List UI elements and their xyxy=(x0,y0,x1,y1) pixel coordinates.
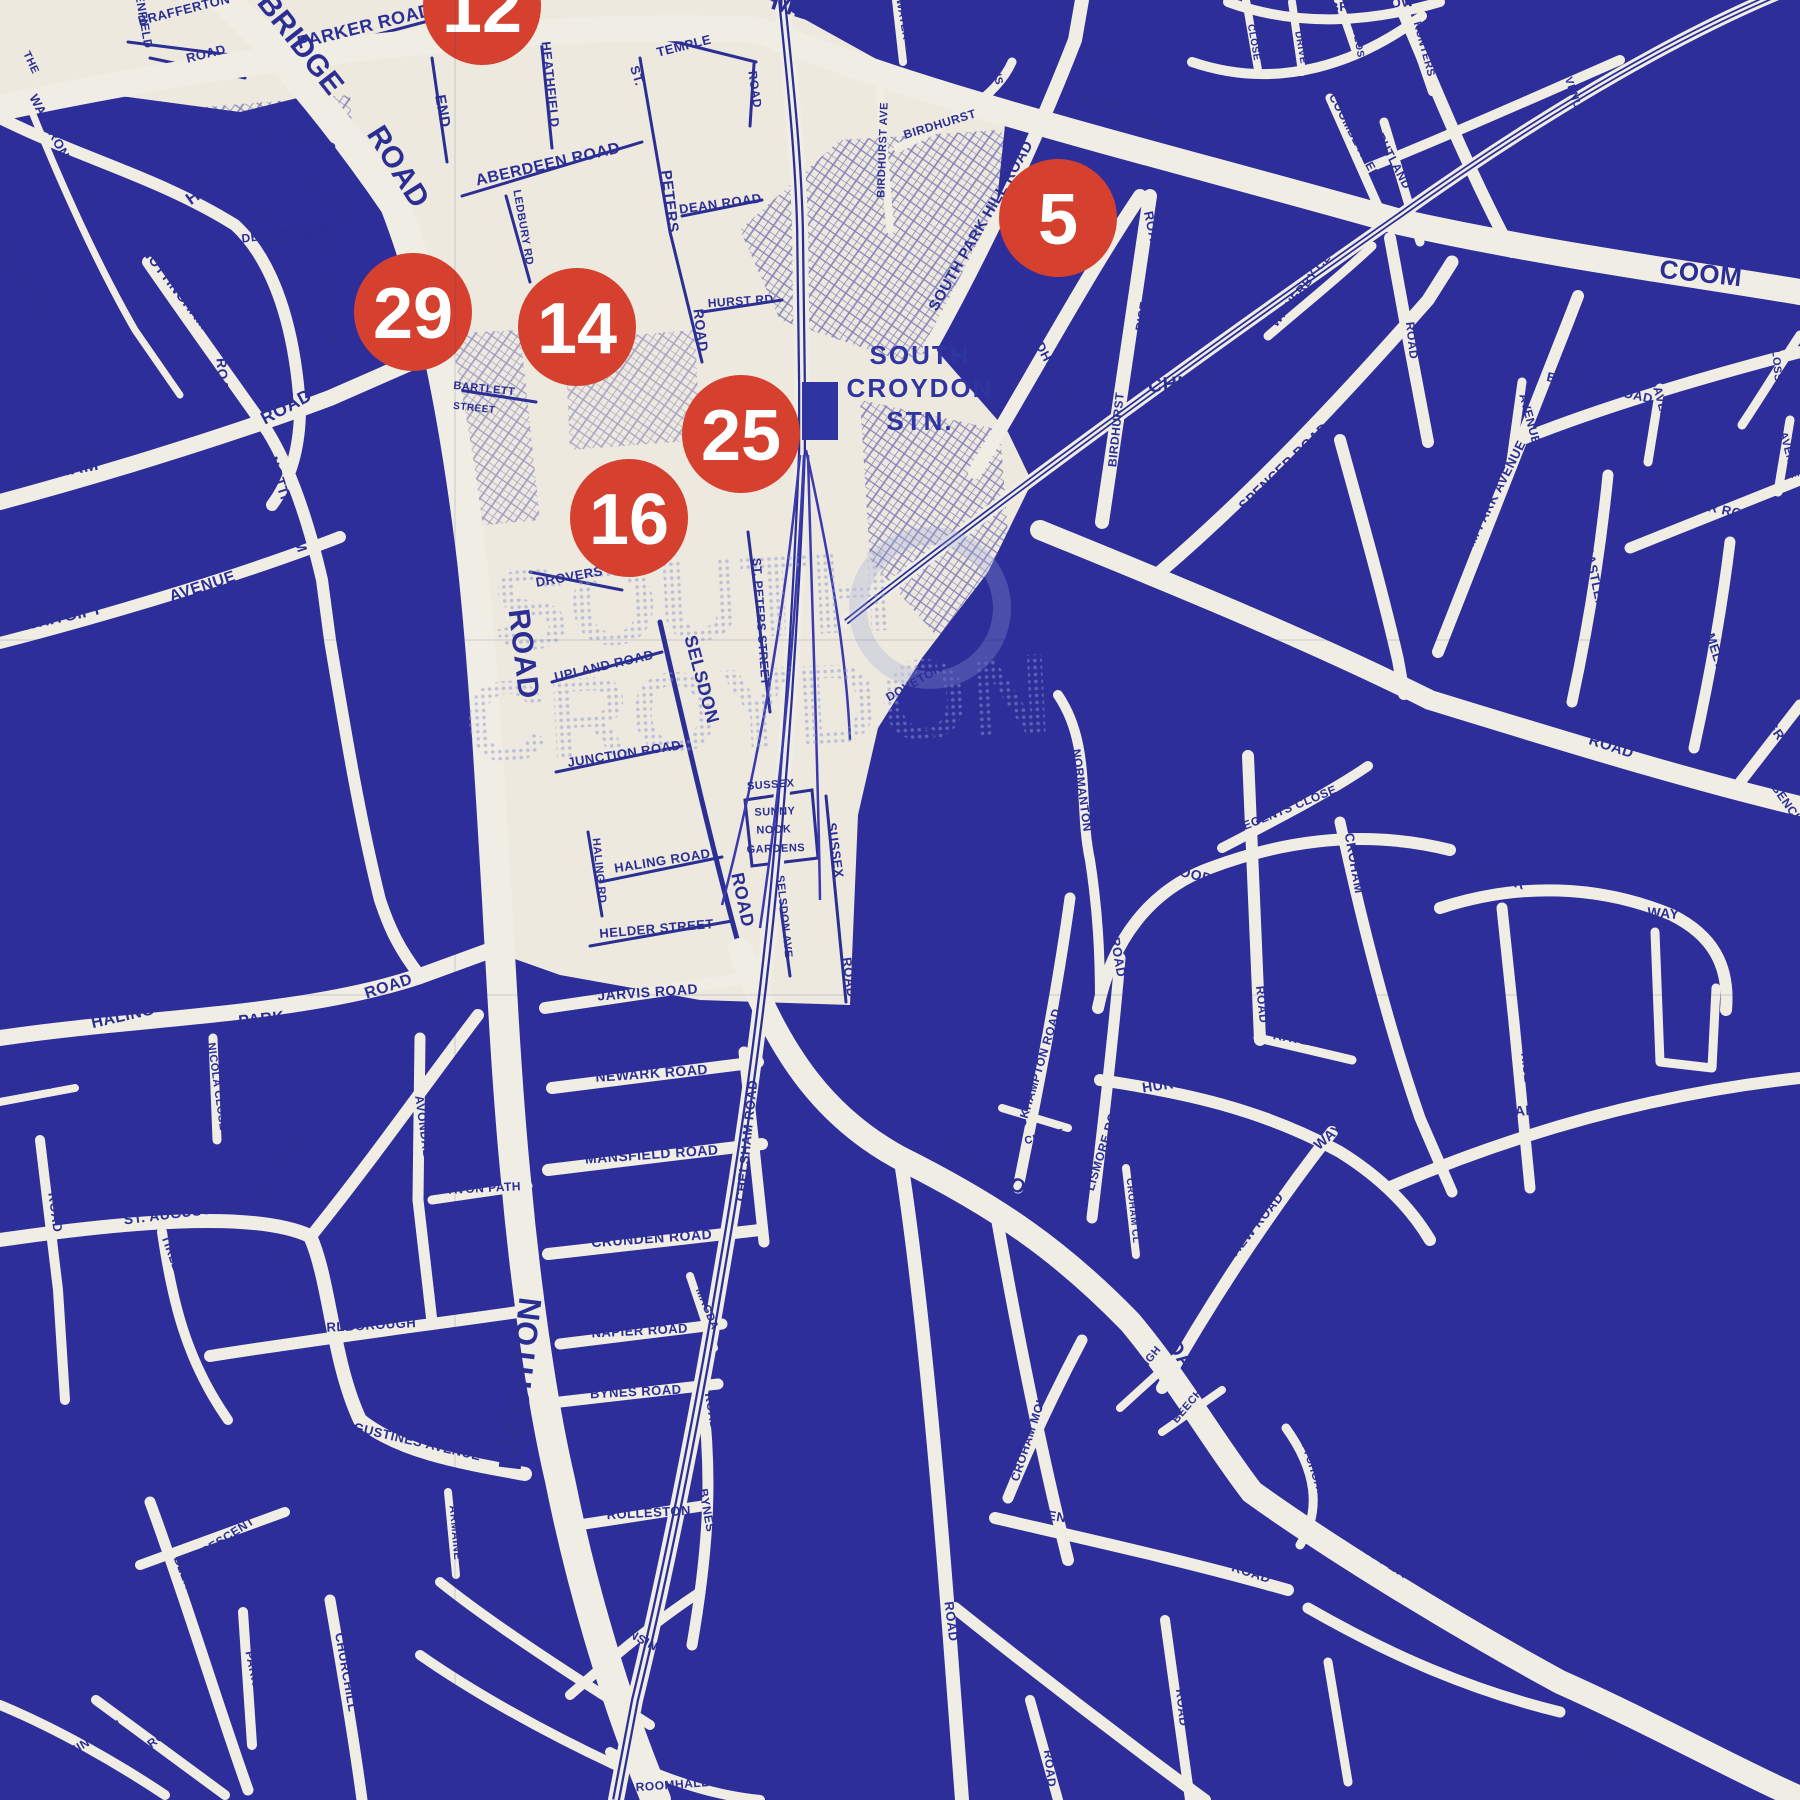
station-name-line: CROYDON xyxy=(847,373,994,403)
marker-number: 12 xyxy=(442,0,522,48)
street-label-way: WAY xyxy=(1647,904,1680,922)
marker-number: 16 xyxy=(589,480,669,560)
marker-14[interactable]: 14 xyxy=(518,268,636,386)
marker-number: 5 xyxy=(1038,180,1078,260)
marker-25[interactable]: 25 xyxy=(682,375,800,493)
street-label-gardens: GARDENS xyxy=(746,842,805,856)
marker-number: 25 xyxy=(701,396,781,476)
map-canvas: SOUTH CROYDON BRIDGEROADPARKER ROADBRAFF… xyxy=(0,0,1800,1800)
street-label-sunny: SUNNY xyxy=(754,805,796,818)
station-name-line: SOUTH xyxy=(870,340,971,370)
marker-number: 29 xyxy=(373,274,453,354)
station-name-line: STN. xyxy=(886,406,953,436)
marker-16[interactable]: 16 xyxy=(570,459,688,577)
station-symbol[interactable] xyxy=(802,382,838,440)
marker-number: 14 xyxy=(537,289,617,369)
croydon-map: SOUTH CROYDON BRIDGEROADPARKER ROADBRAFF… xyxy=(0,0,1800,1800)
marker-5[interactable]: 5 xyxy=(999,159,1117,277)
street-label-chips: CHIPS xyxy=(1147,371,1212,397)
street-label-nook: NOOK xyxy=(756,823,791,836)
street-label-road: ROAD xyxy=(213,358,232,402)
